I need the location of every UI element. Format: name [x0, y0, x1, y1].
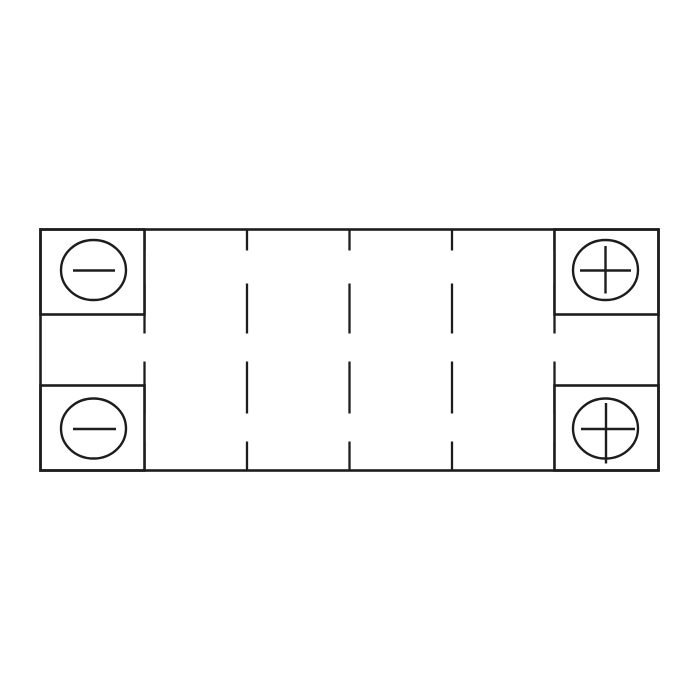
terminal-boxes [41, 230, 659, 471]
battery-diagram-page [0, 0, 700, 700]
diagram-strokes [41, 230, 659, 471]
battery-diagram [0, 0, 700, 700]
terminal-box-top-left [41, 230, 145, 315]
cell-dividers [145, 230, 555, 471]
positive-terminal-icon [573, 240, 638, 300]
